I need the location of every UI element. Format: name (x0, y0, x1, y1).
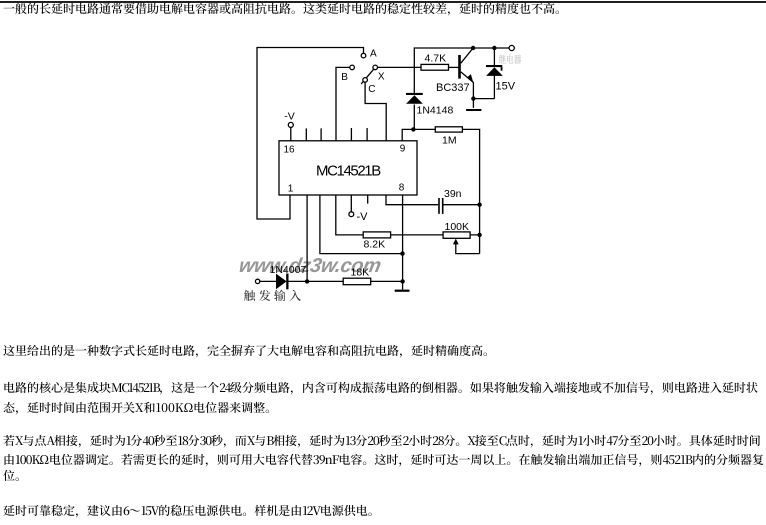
svg-text:B: B (341, 72, 348, 83)
svg-text:4.7K: 4.7K (425, 53, 447, 65)
svg-text:15V: 15V (496, 81, 516, 93)
svg-text:触发输入: 触发输入 (244, 287, 305, 304)
svg-text:1: 1 (288, 184, 294, 195)
svg-text:A: A (370, 49, 377, 60)
svg-text:X: X (378, 72, 385, 83)
svg-text:MC14521B: MC14521B (316, 163, 381, 180)
svg-text:100K: 100K (445, 221, 470, 233)
svg-text:1M: 1M (442, 135, 457, 147)
svg-text:1N4148: 1N4148 (417, 105, 454, 117)
svg-text:8: 8 (399, 183, 405, 194)
svg-text:-V: -V (357, 211, 369, 223)
svg-text:继电器: 继电器 (499, 52, 522, 67)
svg-text:9: 9 (400, 144, 406, 155)
svg-text:-V: -V (284, 111, 295, 123)
svg-text:39n: 39n (444, 188, 462, 200)
svg-text:8.2K: 8.2K (364, 239, 386, 251)
svg-text:BC337: BC337 (436, 82, 470, 94)
svg-text:1N4007: 1N4007 (270, 264, 307, 276)
svg-text:16: 16 (284, 145, 296, 156)
svg-text:18K: 18K (351, 267, 370, 279)
svg-text:C: C (368, 84, 375, 95)
